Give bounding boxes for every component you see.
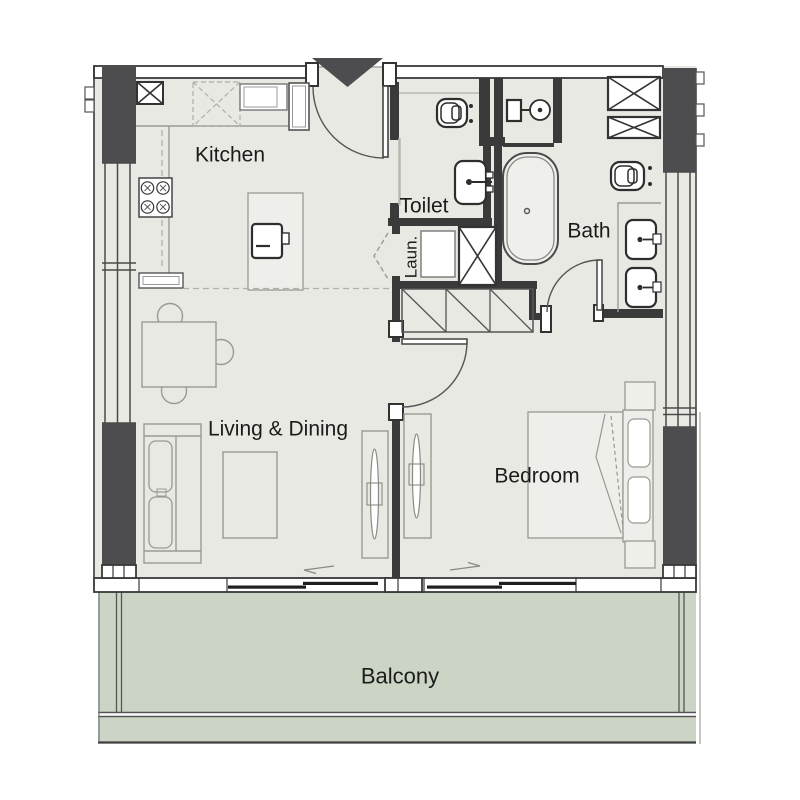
- living-dining-label: Living & Dining: [208, 418, 348, 441]
- shower-mixer: [507, 100, 521, 121]
- sofa-cushion: [149, 497, 172, 548]
- toilet-label: Toilet: [399, 195, 448, 218]
- toilet-left-wall-lower: [390, 203, 399, 218]
- bedroom-door-jamb: [389, 321, 403, 337]
- right-column-bottom: [663, 427, 696, 565]
- right-column-top: [663, 68, 696, 172]
- floor-plan: Balcony: [0, 0, 800, 800]
- laundry-label: Laun.: [402, 236, 421, 279]
- shower-left-wall: [494, 78, 503, 146]
- bathtub: [503, 153, 558, 264]
- kitchen-shaft-box: [137, 82, 163, 104]
- balcony-edge-strip: [98, 716, 696, 742]
- kitchen-island: [248, 193, 303, 290]
- left-column-top: [102, 67, 136, 163]
- bath-door-leaf: [597, 260, 602, 310]
- left-wall-tick: [85, 100, 94, 112]
- left-wall-base: [102, 565, 136, 578]
- laundry-wall-top: [392, 226, 400, 234]
- stove: [139, 178, 172, 217]
- entry-door-jamb: [383, 63, 396, 86]
- pillow: [628, 419, 650, 467]
- bedroom-tv-console: [404, 414, 431, 538]
- bath-bottom-wall: [597, 309, 663, 318]
- shower-right-wall: [553, 78, 562, 143]
- bath-shaft-boxes: [608, 77, 660, 138]
- sofa: [144, 424, 201, 563]
- right-wall-base: [663, 565, 696, 578]
- kitchen-base-cabinet: [139, 273, 183, 288]
- bedroom-door-leaf: [402, 339, 467, 344]
- sofa-cushion: [149, 441, 172, 492]
- left-wall-tick: [85, 87, 94, 99]
- toilet-bottom-wall: [388, 218, 492, 226]
- right-wall-tick: [696, 134, 704, 146]
- fridge: [289, 83, 309, 130]
- nightstand: [625, 541, 655, 568]
- pillow: [628, 477, 650, 523]
- balcony-label: Balcony: [361, 664, 439, 689]
- left-column-bottom: [102, 423, 136, 565]
- sliding-door-center-post: [385, 578, 422, 592]
- toilet-right-wall: [479, 78, 490, 140]
- bedroom-label: Bedroom: [494, 465, 579, 488]
- floor-plan-canvas: Balcony: [0, 0, 800, 800]
- right-wall-tick: [696, 104, 704, 116]
- entry-door-leaf: [383, 86, 388, 157]
- balcony: Balcony: [98, 592, 696, 743]
- right-wall-tick: [696, 72, 704, 84]
- balcony-floor: [98, 592, 696, 713]
- nightstand: [625, 382, 655, 410]
- bath-label: Bath: [567, 220, 610, 243]
- island-faucet: [282, 233, 289, 244]
- laundry-shaft-box: [459, 227, 496, 285]
- kitchen-label: Kitchen: [195, 144, 265, 167]
- living-bedroom-wall: [392, 415, 400, 578]
- laundry-machine: [421, 231, 455, 277]
- dining-table: [142, 322, 216, 387]
- toilet-left-wall-upper: [390, 82, 399, 140]
- bedroom-door-jamb: [389, 404, 403, 420]
- shower-curb: [503, 143, 554, 147]
- kitchen-sink-unit: [240, 84, 287, 110]
- bath-door-jamb: [541, 306, 551, 332]
- living-tv-console: [362, 431, 388, 558]
